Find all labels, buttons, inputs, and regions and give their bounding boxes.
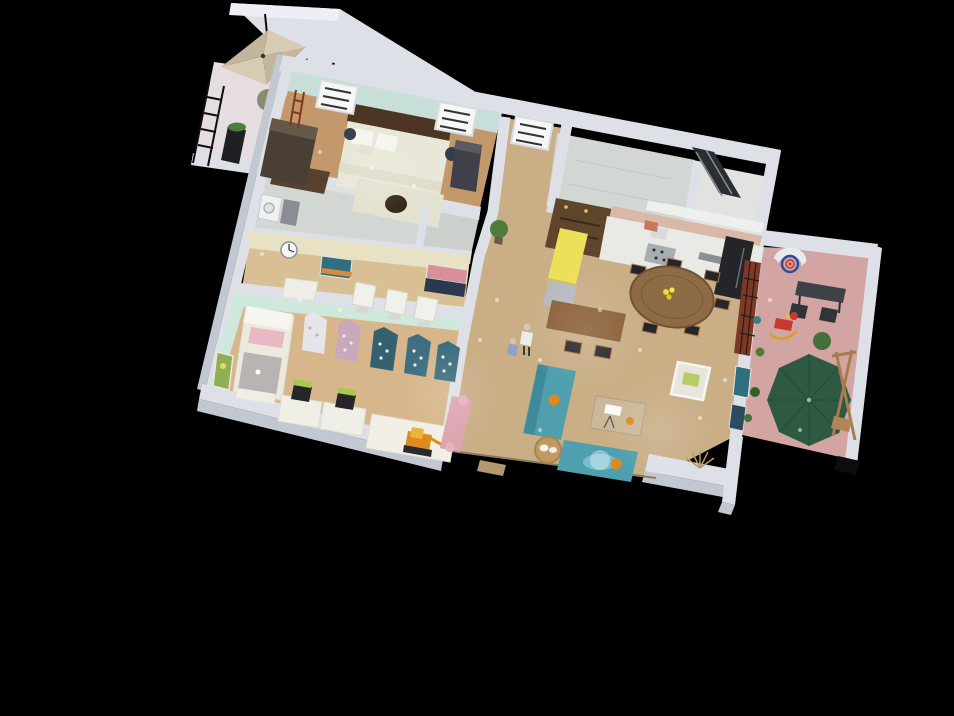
floorplan-render: [0, 0, 954, 716]
potted-plant: [490, 220, 508, 238]
washer-door: [264, 203, 274, 213]
house-shelf-teal: [370, 327, 398, 371]
plant-vase: [344, 128, 356, 140]
patio-bush: [813, 332, 831, 350]
painting-teal: [320, 256, 352, 279]
arched-window: [435, 102, 477, 136]
umbrella-hub: [261, 54, 265, 58]
sofa-lamp-glow: [590, 450, 610, 470]
render-canvas: [0, 0, 954, 716]
throw-pillow: [549, 395, 560, 406]
house-shelf-pink: [335, 319, 361, 362]
arched-window: [316, 80, 358, 114]
house-shelf-white: [302, 312, 327, 354]
planter-plant: [228, 123, 246, 132]
navy-wall-art: [729, 404, 746, 431]
cat: [540, 445, 549, 452]
hallway-window: [511, 116, 553, 150]
green-wall-art: [213, 352, 233, 390]
teal-wall-art: [733, 366, 751, 398]
white-desk: [282, 278, 318, 301]
pet-basket: [535, 437, 561, 463]
